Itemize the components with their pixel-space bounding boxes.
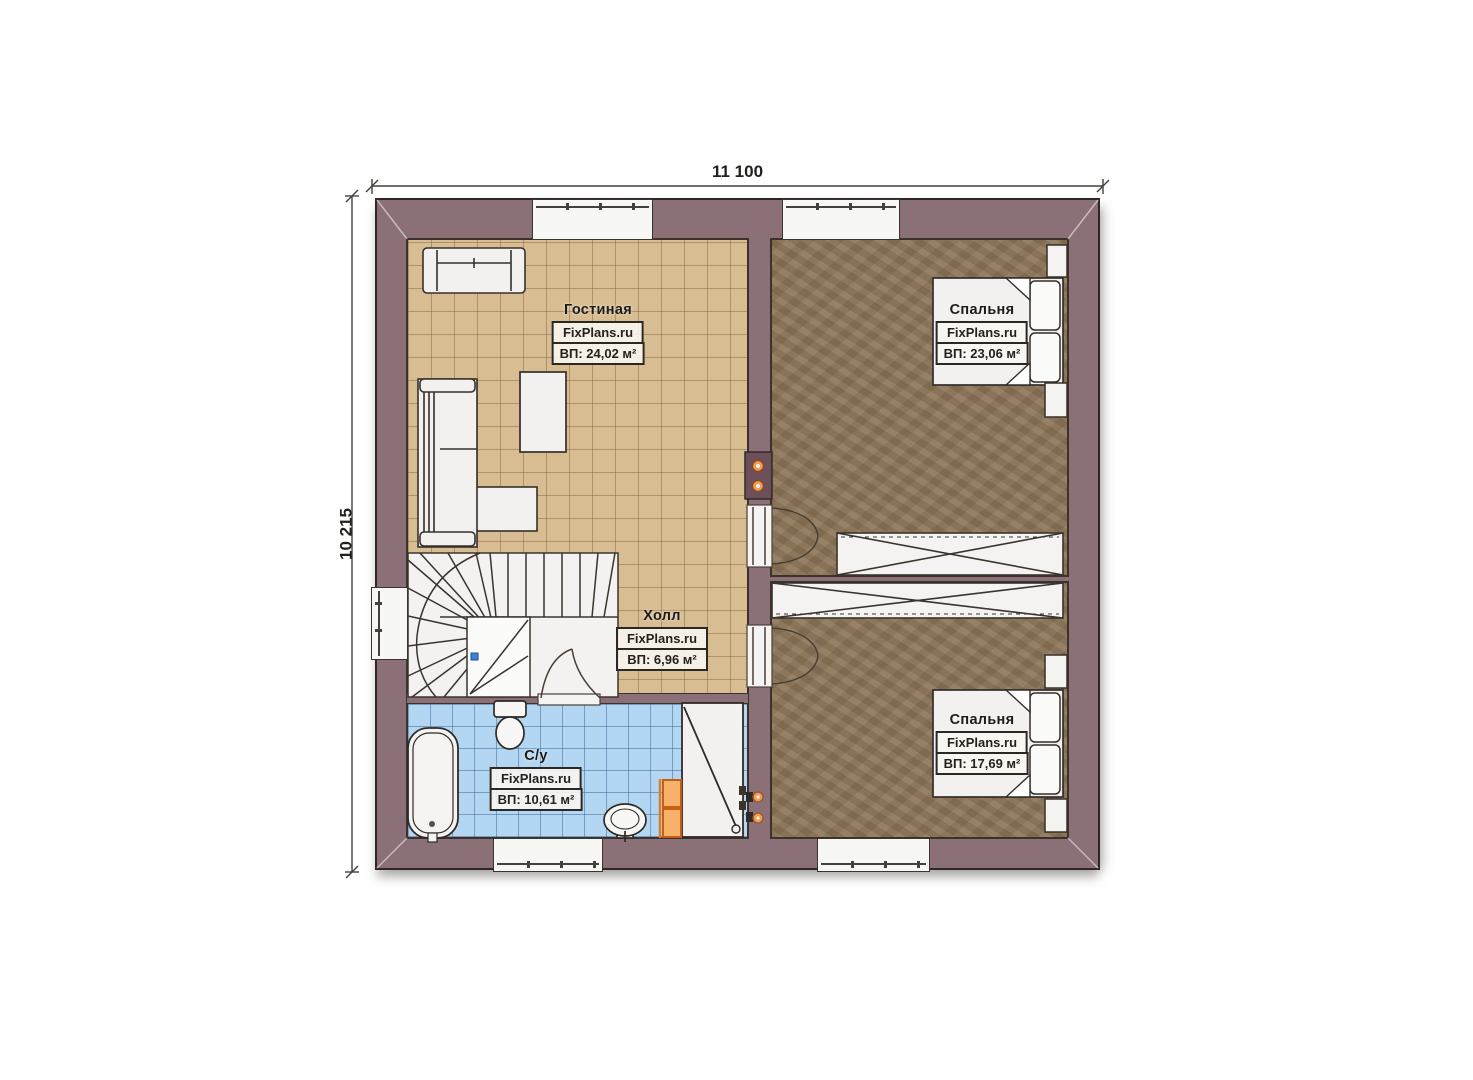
bedroom-top-floor [770,238,1069,577]
room-name: С/у [524,748,547,764]
room-area: ВП: 23,06 м² [936,342,1029,365]
floor-plan-page: 11 100 10 215 [0,0,1473,1080]
room-area: ВП: 6,96 м² [616,648,708,671]
room-name: Спальня [950,302,1015,318]
room-brand: FixPlans.ru [936,321,1028,344]
room-name: Холл [643,608,681,624]
window-bottom-bedroom [817,838,930,872]
room-brand: FixPlans.ru [936,731,1028,754]
room-brand: FixPlans.ru [490,767,582,790]
room-area: ВП: 24,02 м² [552,342,645,365]
room-area: ВП: 10,61 м² [490,788,583,811]
room-name: Гостиная [564,302,632,318]
room-brand: FixPlans.ru [552,321,644,344]
window-left-stairs [371,587,408,660]
window-bottom-bathroom [493,838,603,872]
room-label-bedroom-top: Спальня FixPlans.ru ВП: 23,06 м² [936,302,1029,365]
hall-bathroom-wall [406,693,749,704]
window-top-bedroom [782,199,900,240]
window-top-living [532,199,653,240]
room-label-hall: Холл FixPlans.ru ВП: 6,96 м² [616,608,708,671]
dimension-width-label: 11 100 [690,162,785,182]
room-label-bedroom-bottom: Спальня FixPlans.ru ВП: 17,69 м² [936,712,1029,775]
room-label-bathroom: С/у FixPlans.ru ВП: 10,61 м² [490,748,583,811]
bedroom-bottom-floor [770,581,1069,839]
room-label-living: Гостиная FixPlans.ru ВП: 24,02 м² [552,302,645,365]
room-name: Спальня [950,712,1015,728]
dimension-height-label: 10 215 [337,487,357,582]
room-area: ВП: 17,69 м² [936,752,1029,775]
room-brand: FixPlans.ru [616,627,708,650]
